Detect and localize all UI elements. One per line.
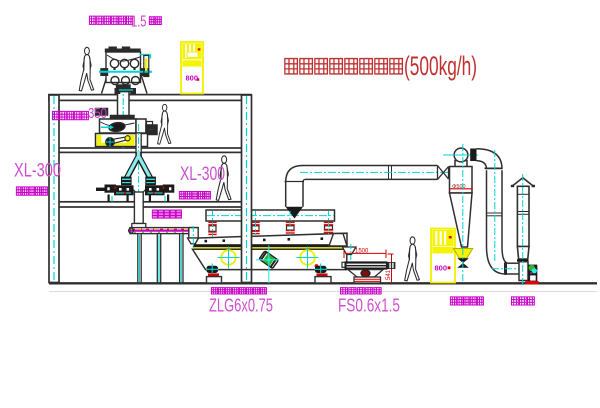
svg-text:1500: 1500 [355,248,369,254]
svg-text:1.5: 1.5 [131,13,147,30]
svg-text:541: 541 [386,269,392,280]
svg-text:FS0.6x1.5: FS0.6x1.5 [338,296,400,316]
svg-text:800: 800 [435,264,448,273]
svg-text:ZLG6x0.75: ZLG6x0.75 [209,296,273,316]
svg-text:350: 350 [88,105,107,122]
svg-text:800: 800 [186,74,199,83]
svg-text:XL-300: XL-300 [14,160,61,182]
svg-text:(500kg/h): (500kg/h) [404,51,477,81]
svg-text:XL-300: XL-300 [180,163,225,185]
svg-text:Φ500: Φ500 [452,184,466,190]
